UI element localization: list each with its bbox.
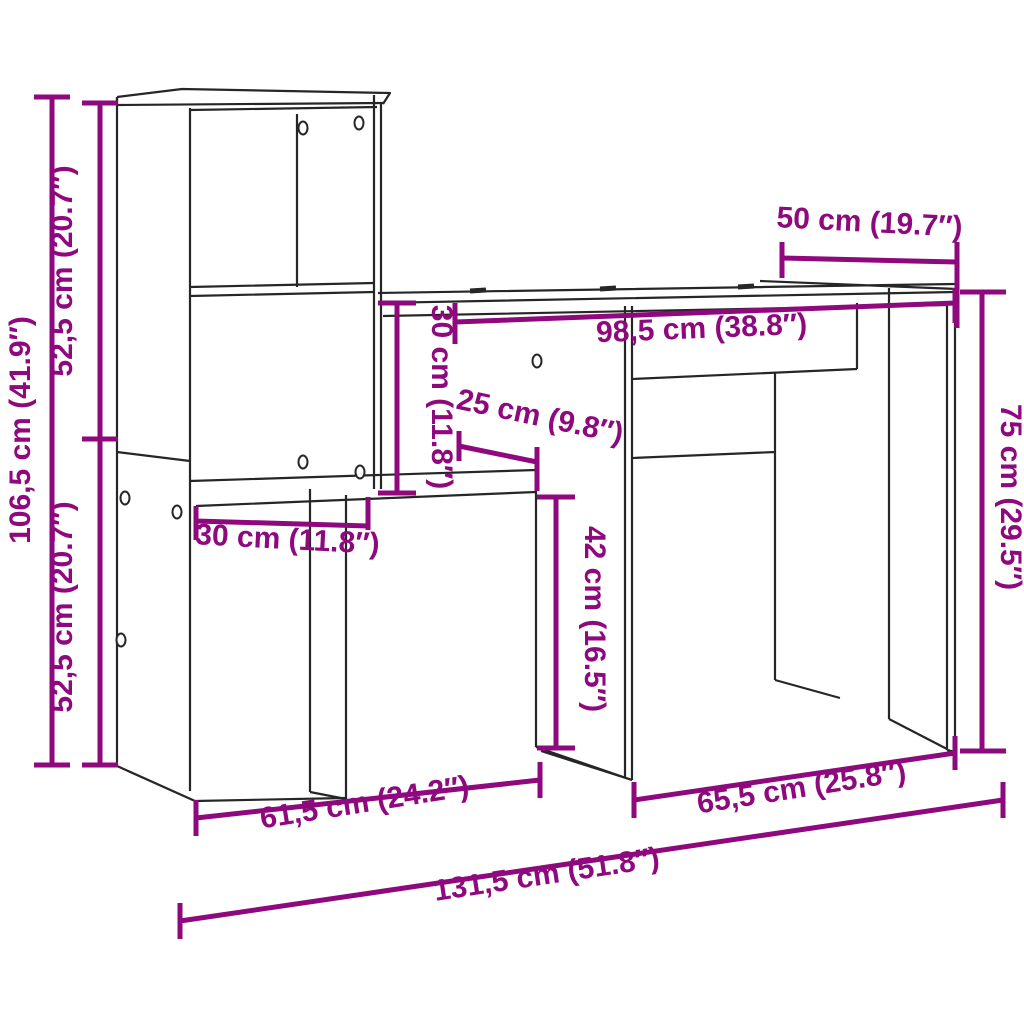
- dimension-label-lower-section-height: 52,5 cm (20.7″): [46, 501, 79, 712]
- dimension-shelf-depth: 25 cm (9.8″): [454, 383, 627, 491]
- screw-hole: [117, 634, 126, 647]
- low-shelf: [190, 470, 632, 780]
- dimension-label-left-section-width: 61,5 cm (24.2″): [258, 770, 472, 836]
- dimension-shelf-width: 30 cm (11.8″): [195, 497, 381, 561]
- tower-left-panel: [117, 97, 346, 801]
- furniture-line-art: [117, 89, 958, 801]
- dimension-label-shelf-opening-height: 30 cm (11.8″): [425, 305, 458, 489]
- desktop: [378, 281, 957, 316]
- dimension-annotations: 106,5 cm (41.9″) 52,5 cm (20.7″) 52,5 cm…: [4, 97, 1024, 939]
- tower-right-panel: [310, 95, 381, 799]
- screw-hole: [299, 122, 308, 135]
- dimension-label-shelf-depth: 25 cm (9.8″): [454, 383, 627, 451]
- dimension-label-desktop-width: 98,5 cm (38.8″): [595, 308, 807, 349]
- dimension-label-desktop-depth: 50 cm (19.7″): [776, 201, 964, 244]
- dimension-label-overall-width: 131,5 cm (51.8″): [431, 841, 661, 907]
- screw-hole: [356, 466, 365, 479]
- product-dimension-diagram: 106,5 cm (41.9″) 52,5 cm (20.7″) 52,5 cm…: [0, 0, 1024, 1024]
- dimension-lower-section-height: 52,5 cm (20.7″): [46, 439, 118, 765]
- dimension-shelf-opening-height: 30 cm (11.8″): [378, 303, 458, 493]
- dimension-label-upper-section-height: 52,5 cm (20.7″): [46, 165, 79, 376]
- screw-hole: [533, 355, 542, 368]
- dimension-label-right-section-width: 65,5 cm (25.8″): [695, 755, 909, 821]
- tower-top-panel: [117, 89, 390, 110]
- dimension-under-shelf-clearance: 42 cm (16.5″): [537, 497, 611, 748]
- dimension-label-overall-height: 106,5 cm (41.9″): [4, 316, 37, 544]
- dimension-label-under-shelf-clearance: 42 cm (16.5″): [578, 526, 611, 712]
- screw-hole: [299, 456, 308, 469]
- drawer-unit: [632, 303, 857, 698]
- screw-hole: [355, 117, 364, 130]
- right-panel: [889, 288, 955, 752]
- dimension-upper-section-height: 52,5 cm (20.7″): [46, 103, 118, 439]
- screw-hole: [121, 492, 130, 505]
- dimension-desk-height: 75 cm (29.5″): [960, 292, 1024, 751]
- dimension-label-desk-height: 75 cm (29.5″): [994, 404, 1024, 590]
- tower-shelf-board: [190, 283, 374, 296]
- screw-hole: [173, 506, 182, 519]
- dimension-right-section-width: 65,5 cm (25.8″): [634, 736, 955, 820]
